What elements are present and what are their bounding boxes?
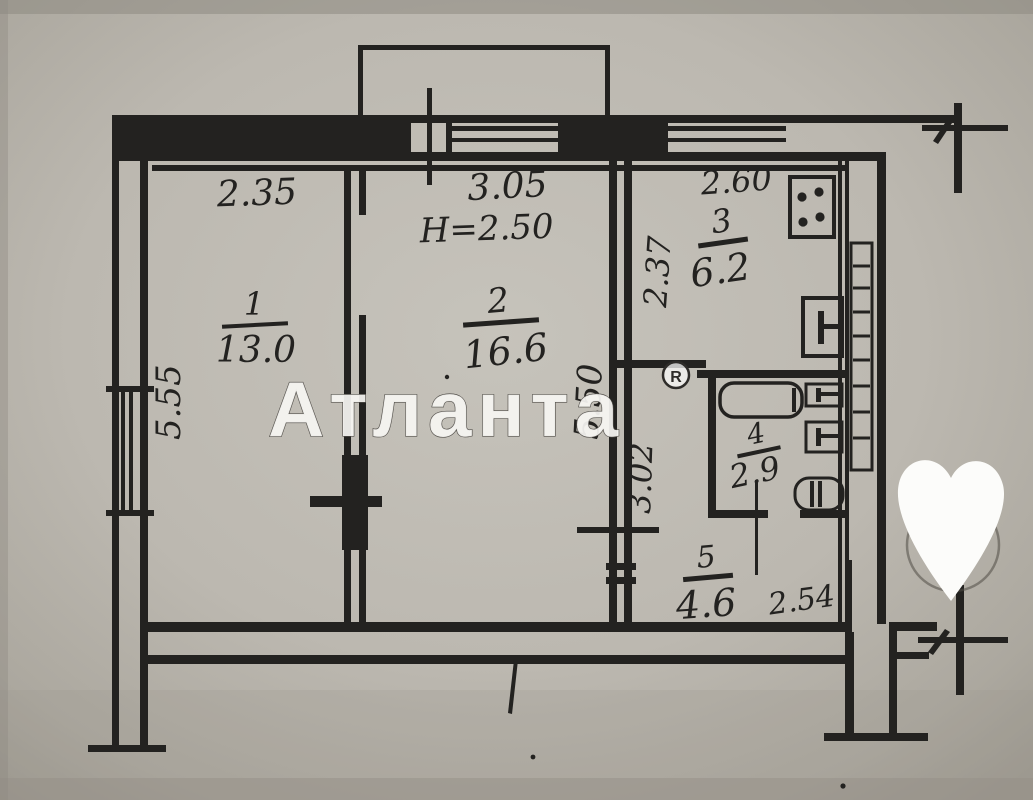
speck <box>531 755 536 760</box>
room2-width-dim: 3.05 <box>466 164 548 209</box>
room2-height-note: H=2.50 <box>418 207 554 252</box>
floor-plan-svg: 2.35 1 13.0 5.55 3.05 H=2.50 2 16.6 5.50… <box>0 0 1033 800</box>
top-wall-solid-mid <box>558 115 668 161</box>
bathroom-top-wall <box>697 370 845 378</box>
kitchen-right-wall-b <box>845 158 849 622</box>
registered-letter: R <box>670 369 682 386</box>
left-wall-bottom-cap <box>88 745 166 752</box>
top-wall-solid-left <box>112 115 405 161</box>
right-wall-top <box>954 103 962 193</box>
stairwell-wall <box>877 152 886 624</box>
tick-top-right <box>922 125 1008 131</box>
room1-width-dim: 2.35 <box>215 172 298 216</box>
room3-area: 6.2 <box>687 244 753 296</box>
left-wall-outer-line <box>112 115 119 748</box>
registered-trademark-icon: R <box>663 362 689 388</box>
room2-number: 2 <box>485 280 511 322</box>
bottom-wall-right-piece <box>897 622 937 631</box>
room5-depth-dim: 3.02 <box>620 442 660 515</box>
bottom-wall-right-piece2 <box>897 652 929 659</box>
pier-edge <box>405 115 411 161</box>
speck <box>840 783 845 788</box>
pier-edge <box>446 115 452 161</box>
bottom-wall-inner-line <box>146 622 848 632</box>
watermark-text: Атланта <box>268 365 624 453</box>
tick-bottom-right <box>918 637 1008 643</box>
room5-area: 4.6 <box>673 580 737 628</box>
kitchen-bottom-wall <box>616 360 706 368</box>
bottom-wall-outer-line <box>146 655 848 664</box>
scanned-floor-plan: 2.35 1 13.0 5.55 3.05 H=2.50 2 16.6 5.50… <box>0 0 1033 800</box>
room3-width-dim: 2.60 <box>698 160 773 203</box>
room4-leader-line <box>755 480 758 575</box>
room1-number: 1 <box>244 285 264 323</box>
room3-depth-dim: 2.37 <box>636 234 679 309</box>
room5-number: 5 <box>695 539 717 576</box>
room1-depth-dim: 5.55 <box>149 364 189 440</box>
